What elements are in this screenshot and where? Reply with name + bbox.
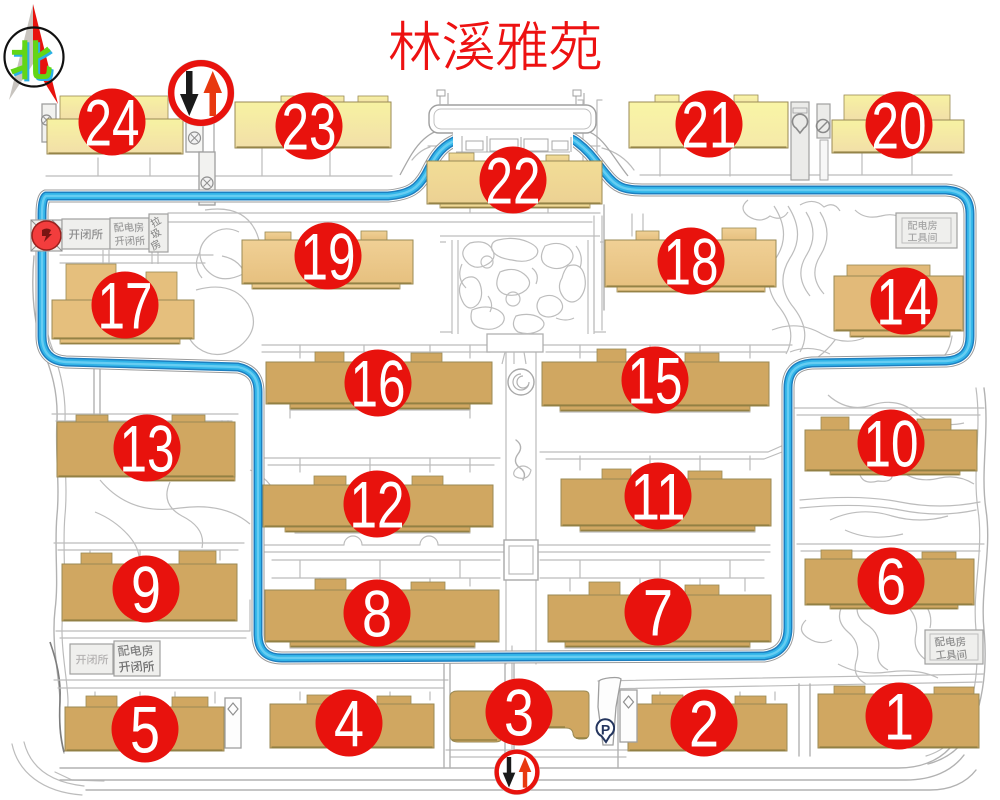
svg-text:2: 2 <box>689 687 719 761</box>
svg-text:12: 12 <box>350 468 405 542</box>
svg-text:10: 10 <box>864 407 919 481</box>
svg-text:3: 3 <box>504 676 534 750</box>
svg-text:14: 14 <box>877 265 932 339</box>
svg-text:13: 13 <box>120 412 175 486</box>
svg-text:21: 21 <box>682 88 737 162</box>
svg-text:24: 24 <box>85 86 140 160</box>
svg-text:6: 6 <box>876 545 906 619</box>
svg-text:23: 23 <box>282 90 337 164</box>
svg-text:17: 17 <box>98 269 153 343</box>
svg-text:22: 22 <box>486 144 541 218</box>
svg-text:7: 7 <box>643 576 673 650</box>
svg-text:1: 1 <box>884 680 914 754</box>
svg-text:P: P <box>601 722 610 738</box>
svg-text:15: 15 <box>628 344 683 418</box>
svg-text:19: 19 <box>301 220 356 294</box>
svg-text:8: 8 <box>362 577 392 651</box>
svg-text:11: 11 <box>631 460 686 534</box>
svg-text:20: 20 <box>872 89 927 163</box>
svg-text:9: 9 <box>131 553 161 627</box>
svg-text:18: 18 <box>664 225 719 299</box>
svg-text:5: 5 <box>130 693 160 767</box>
svg-text:16: 16 <box>351 347 406 421</box>
svg-text:4: 4 <box>334 687 364 761</box>
